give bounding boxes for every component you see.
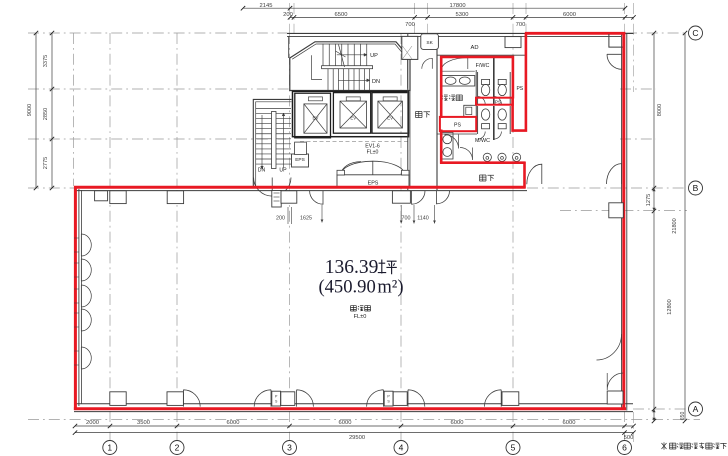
svg-text:2775: 2775 bbox=[43, 157, 49, 169]
svg-text:6000: 6000 bbox=[563, 12, 576, 18]
svg-text:A: A bbox=[693, 404, 699, 414]
svg-text:6000: 6000 bbox=[339, 420, 352, 426]
svg-text:700: 700 bbox=[405, 22, 415, 28]
svg-text:EV: EV bbox=[387, 116, 393, 121]
svg-text:F/WC: F/WC bbox=[476, 63, 490, 69]
svg-text:3375: 3375 bbox=[43, 55, 49, 67]
svg-text:6000: 6000 bbox=[451, 420, 464, 426]
svg-text:PS: PS bbox=[516, 86, 523, 92]
svg-text:C: C bbox=[692, 28, 698, 38]
svg-text:1625: 1625 bbox=[300, 216, 312, 222]
svg-text:29500: 29500 bbox=[349, 435, 365, 441]
svg-text:5: 5 bbox=[511, 443, 516, 453]
svg-text:200: 200 bbox=[276, 216, 285, 222]
svg-text:2850: 2850 bbox=[43, 108, 49, 120]
svg-text:136.39: 136.39 bbox=[325, 257, 379, 278]
svg-text:UP: UP bbox=[370, 53, 378, 59]
svg-text:700: 700 bbox=[516, 22, 526, 28]
svg-text:5300: 5300 bbox=[456, 12, 469, 18]
svg-text:3500: 3500 bbox=[137, 420, 150, 426]
svg-text:3: 3 bbox=[287, 443, 292, 453]
svg-text:FL±0: FL±0 bbox=[367, 149, 379, 155]
svg-text:200: 200 bbox=[283, 12, 293, 18]
svg-text:700: 700 bbox=[402, 216, 411, 222]
svg-text:6: 6 bbox=[622, 443, 627, 453]
svg-text:2000: 2000 bbox=[86, 420, 99, 426]
svg-text:8000: 8000 bbox=[657, 104, 663, 116]
svg-text:DN: DN bbox=[258, 168, 266, 174]
svg-text:2145: 2145 bbox=[260, 3, 273, 9]
svg-text:17800: 17800 bbox=[449, 3, 465, 9]
svg-text:4: 4 bbox=[399, 443, 404, 453]
svg-text:12800: 12800 bbox=[667, 299, 673, 315]
svg-text:6000: 6000 bbox=[227, 420, 240, 426]
svg-text:21800: 21800 bbox=[672, 218, 678, 234]
svg-text:1140: 1140 bbox=[417, 216, 429, 222]
svg-text:SK: SK bbox=[426, 40, 433, 46]
svg-text:UP: UP bbox=[279, 168, 287, 174]
svg-text:(450.90 m²): (450.90 m²) bbox=[318, 277, 403, 298]
svg-text:EPS: EPS bbox=[295, 157, 305, 163]
svg-text:6000: 6000 bbox=[563, 420, 576, 426]
svg-text:DN: DN bbox=[372, 79, 380, 85]
svg-text:6500: 6500 bbox=[335, 12, 348, 18]
svg-text:EV: EV bbox=[313, 116, 319, 121]
svg-text:FL±0: FL±0 bbox=[354, 314, 367, 320]
svg-text:1: 1 bbox=[107, 443, 112, 453]
svg-text:EV: EV bbox=[350, 116, 356, 121]
svg-text:AD: AD bbox=[470, 45, 478, 51]
svg-text:1275: 1275 bbox=[646, 194, 652, 206]
svg-text:EPS: EPS bbox=[368, 181, 379, 187]
svg-text:B: B bbox=[693, 183, 699, 193]
svg-text:9000: 9000 bbox=[27, 104, 33, 116]
svg-text:2: 2 bbox=[175, 443, 180, 453]
svg-text:650: 650 bbox=[680, 412, 686, 421]
svg-text:PS: PS bbox=[454, 123, 461, 129]
svg-text:M/WC: M/WC bbox=[475, 138, 490, 144]
